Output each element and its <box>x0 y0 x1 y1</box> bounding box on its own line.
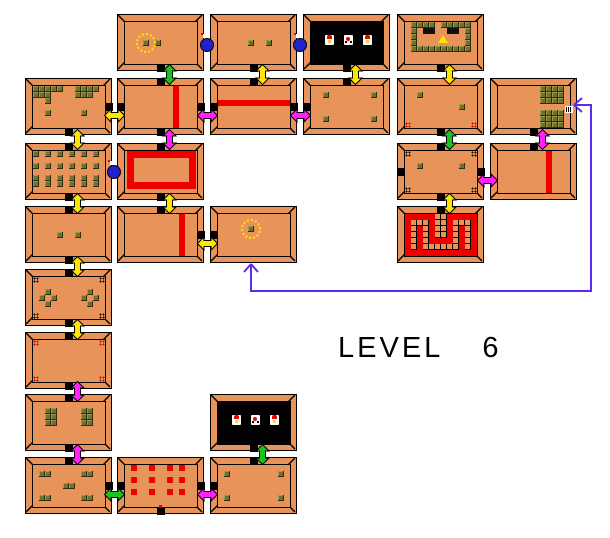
arrow-yellow-v-1-3 <box>70 193 85 214</box>
room-interior <box>32 464 106 508</box>
block-tile <box>558 98 564 104</box>
block-tile <box>81 181 87 187</box>
triforce-icon <box>438 35 448 43</box>
bomb-icon <box>200 38 214 52</box>
arrow-yellow-v-3-1 <box>255 64 270 85</box>
jar-dot <box>366 40 369 43</box>
arrow-yellow-v-2-3 <box>162 193 177 214</box>
bomb-fuse-spark <box>296 34 299 38</box>
block-tile <box>45 151 51 157</box>
block-tile <box>33 151 39 157</box>
trap-tile <box>33 340 39 346</box>
block-tile <box>93 86 99 92</box>
red-enemy-tile <box>149 465 155 471</box>
block-tile <box>69 163 75 169</box>
room-interior <box>404 150 478 194</box>
red-enemy-tile <box>149 477 155 483</box>
arrow-green-v-5-2 <box>442 129 457 150</box>
red-enemy-tile <box>179 477 185 483</box>
red-enemy-tile <box>131 489 137 495</box>
room-row4-col5-maze <box>397 206 484 263</box>
block-tile <box>459 163 465 169</box>
block-tile <box>57 163 63 169</box>
block-tile <box>69 151 75 157</box>
trap-tile <box>99 376 105 382</box>
bomb-fuse-flame <box>201 33 203 35</box>
room-interior <box>217 85 291 129</box>
maze-path-cell <box>441 232 447 238</box>
block-tile <box>87 301 93 307</box>
room-interior <box>32 401 106 445</box>
room-interior <box>404 21 478 65</box>
block-tile <box>224 471 230 477</box>
red-wall-vertical <box>179 214 185 256</box>
block-tile <box>278 495 284 501</box>
block-tile <box>371 116 377 122</box>
block-tile <box>93 163 99 169</box>
dark-tile <box>429 28 435 34</box>
arrow-magenta-v-1-6 <box>70 381 85 402</box>
room-row8-col3 <box>210 457 297 514</box>
npc-dot <box>252 421 254 423</box>
block-tile <box>45 98 51 104</box>
block-tile <box>266 40 272 46</box>
item-location-circle <box>136 33 156 53</box>
arrow-yellow-h-1-2 <box>104 108 125 123</box>
room-interior <box>32 213 106 257</box>
arrow-yellow-v-1-5 <box>70 319 85 340</box>
maze-path-cell <box>453 244 459 250</box>
room-row7-col1 <box>25 394 112 451</box>
arrow-yellow-v-4-1 <box>348 64 363 85</box>
block-tile <box>45 471 51 477</box>
room-interior <box>32 150 106 194</box>
arrow-magenta-v-1-7 <box>70 444 85 465</box>
block-tile <box>81 151 87 157</box>
red-enemy-tile <box>179 489 185 495</box>
block-tile <box>33 163 39 169</box>
npc-icon <box>250 414 261 426</box>
block-tile <box>57 86 63 92</box>
block-tile <box>248 40 254 46</box>
block-tile <box>81 163 87 169</box>
room-interior <box>404 213 478 257</box>
white-item-stroke <box>568 107 569 112</box>
red-enemy-tile <box>167 465 173 471</box>
statue-tile <box>99 277 105 283</box>
block-tile <box>558 122 564 128</box>
block-tile <box>33 181 39 187</box>
room-interior <box>32 85 106 129</box>
arrow-magenta-h-5-3 <box>477 173 498 188</box>
jar-top <box>234 415 239 419</box>
block-tile <box>93 181 99 187</box>
jar-dot <box>328 40 331 43</box>
bomb-fuse-spark <box>203 34 206 38</box>
item-jar-icon <box>231 414 242 426</box>
maze-path-cell <box>411 244 417 250</box>
statue-tile <box>405 151 411 157</box>
room-interior <box>310 85 384 129</box>
block-tile <box>69 483 75 489</box>
jar-top <box>327 35 332 39</box>
room-row3-col1 <box>25 143 112 200</box>
white-item-stroke <box>566 107 567 112</box>
room-interior <box>124 150 198 194</box>
arrow-magenta-v-6-2 <box>535 129 550 150</box>
bomb-fuse-spark <box>110 161 113 165</box>
block-tile <box>87 471 93 477</box>
room-row5-col1 <box>25 269 112 326</box>
block-tile <box>371 92 377 98</box>
block-tile <box>417 163 423 169</box>
room-row8-col2-entrance <box>117 457 204 514</box>
statue-tile <box>471 151 477 157</box>
arrow-green-v-2-1 <box>162 64 177 85</box>
block-tile <box>87 92 93 98</box>
block-tile <box>51 295 57 301</box>
room-interior <box>217 464 291 508</box>
room-row1-col5-triforce <box>397 14 484 71</box>
bomb-fuse-flame <box>108 160 110 162</box>
room-interior <box>497 150 571 194</box>
red-enemy-tile <box>167 477 173 483</box>
room-row4-col1 <box>25 206 112 263</box>
arrow-yellow-v-1-2 <box>70 129 85 150</box>
arrow-yellow-v-5-3 <box>442 193 457 214</box>
arrow-yellow-v-1-4 <box>70 256 85 277</box>
bomb-icon <box>107 165 121 179</box>
room-interior <box>124 213 198 257</box>
room-row4-col3 <box>210 206 297 263</box>
trap-tile <box>405 122 411 128</box>
block-tile <box>57 232 63 238</box>
red-enemy-tile <box>131 465 137 471</box>
room-row2-col4 <box>303 78 390 135</box>
room-row2-col3 <box>210 78 297 135</box>
red-enemy-tile <box>131 477 137 483</box>
white-item-stroke <box>570 107 571 112</box>
block-tile <box>45 110 51 116</box>
npc-icon <box>343 34 354 46</box>
room-interior <box>124 464 198 508</box>
jar-dot <box>273 420 276 423</box>
red-enemy-tile <box>179 465 185 471</box>
arrow-green-h-1-8 <box>104 487 125 502</box>
block-tile <box>51 420 57 426</box>
arrow-yellow-v-5-1 <box>442 64 457 85</box>
block-tile <box>87 495 93 501</box>
bomb-icon <box>293 38 307 52</box>
block-tile <box>57 151 63 157</box>
room-row1-col4-dark <box>303 14 390 71</box>
room-row3-col5 <box>397 143 484 200</box>
red-wall-vertical <box>546 151 552 193</box>
statue-tile <box>33 277 39 283</box>
statue-tile <box>99 313 105 319</box>
room-interior <box>217 213 291 257</box>
item-location-circle <box>241 219 261 239</box>
npc-dot <box>345 41 347 43</box>
arrow-magenta-h-2-8 <box>197 487 218 502</box>
room-interior <box>497 85 571 129</box>
jar-dot <box>235 420 238 423</box>
block-tile <box>459 104 465 110</box>
trap-tile <box>99 340 105 346</box>
arrow-yellow-h-2-4 <box>197 236 218 251</box>
block-tile <box>278 471 284 477</box>
block-tile <box>417 92 423 98</box>
block-tile <box>69 181 75 187</box>
room-row2-col2 <box>117 78 204 135</box>
room-interior <box>404 85 478 129</box>
red-enemy-tile <box>149 489 155 495</box>
red-wall-vertical <box>173 86 179 128</box>
trap-tile <box>471 122 477 128</box>
red-wall-loop <box>127 151 196 189</box>
block-tile <box>81 110 87 116</box>
room-row2-col1 <box>25 78 112 135</box>
block-tile <box>224 495 230 501</box>
room-row6-col1 <box>25 332 112 389</box>
block-tile <box>323 116 329 122</box>
room-row8-col1 <box>25 457 112 514</box>
item-jar-icon <box>269 414 280 426</box>
arrow-magenta-h-2-2 <box>197 108 218 123</box>
room-row4-col2 <box>117 206 204 263</box>
item-jar-icon <box>324 34 335 46</box>
room-interior <box>217 21 291 65</box>
block-tile <box>45 301 51 307</box>
red-wall-horizontal <box>218 100 290 106</box>
room-row3-col6 <box>490 143 577 200</box>
dark-tile <box>453 28 459 34</box>
npc-dot <box>257 421 259 423</box>
room-row1-col3 <box>210 14 297 71</box>
white-item-icon <box>565 106 573 113</box>
room-interior <box>124 21 198 65</box>
block-tile <box>45 181 51 187</box>
item-jar-icon <box>362 34 373 46</box>
jar-top <box>272 415 277 419</box>
room-interior <box>32 339 106 383</box>
statue-tile <box>33 313 39 319</box>
block-tile <box>323 92 329 98</box>
block-tile <box>93 295 99 301</box>
level-title: LEVEL 6 <box>338 332 501 365</box>
trap-tile <box>33 376 39 382</box>
block-tile <box>57 181 63 187</box>
block-tile <box>75 232 81 238</box>
maze-path-cell <box>465 244 471 250</box>
door-bottom <box>157 508 165 515</box>
room-row2-col5 <box>397 78 484 135</box>
arrow-green-v-3-7 <box>255 444 270 465</box>
room-row7-col3-dark <box>210 394 297 451</box>
red-maze <box>405 214 477 256</box>
arrow-magenta-h-3-2 <box>290 108 311 123</box>
bomb-fuse-flame <box>294 33 296 35</box>
arrow-magenta-v-2-2 <box>162 129 177 150</box>
dungeon-map-canvas: LEVEL 6 <box>0 0 610 538</box>
jar-top <box>365 35 370 39</box>
room-interior <box>124 85 198 129</box>
room-row2-col6 <box>490 78 577 135</box>
room-row3-col2 <box>117 143 204 200</box>
block-tile <box>45 495 51 501</box>
door-left <box>398 168 405 176</box>
block-tile <box>93 151 99 157</box>
block-tile <box>465 46 471 52</box>
red-enemy-tile <box>167 489 173 495</box>
block-tile <box>87 420 93 426</box>
room-interior <box>32 276 106 320</box>
statue-tile <box>405 187 411 193</box>
room-r2c2-row1 <box>117 14 204 71</box>
block-tile <box>45 163 51 169</box>
npc-dot <box>350 41 352 43</box>
